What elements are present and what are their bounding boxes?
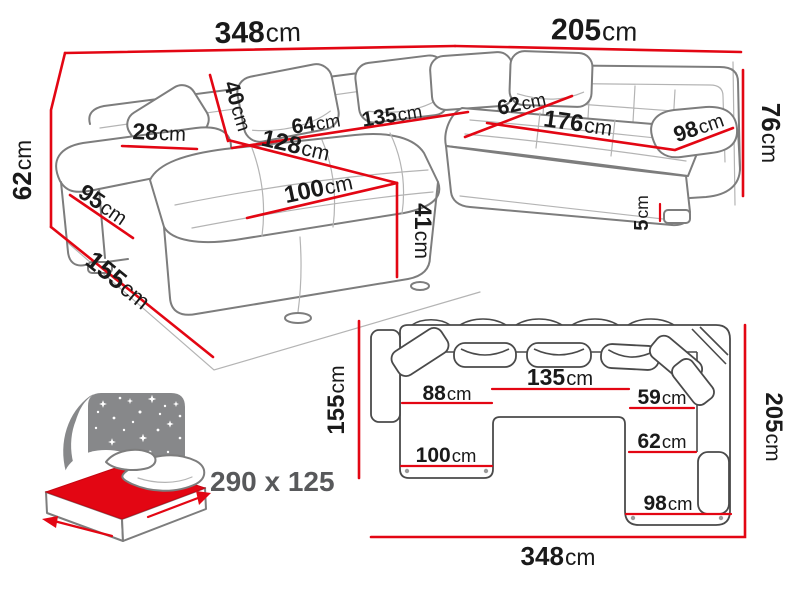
dim-label-armrest-height: 62cm bbox=[7, 140, 37, 200]
dim-label-chaise-total-depth: 155cm bbox=[80, 245, 157, 315]
dim-label-plan-chaise-seat-width: 88cm bbox=[423, 382, 472, 405]
diagram-canvas: 348cm 205cm 76cm 5cm 98cm 176cm 62cm 135… bbox=[0, 0, 800, 600]
dim-label-leg-height: 5cm bbox=[631, 195, 653, 231]
bed-size-label: 290 x 125 bbox=[210, 466, 335, 497]
dim-label-total-width: 348cm bbox=[214, 15, 301, 50]
dim-label-right-side-length: 205cm bbox=[551, 13, 638, 48]
dim-label-plan-right-upper-seat-width: 59cm bbox=[638, 386, 687, 409]
dim-label-plan-right-depth: 205cm bbox=[760, 392, 787, 461]
arrow-head-icon bbox=[42, 516, 58, 528]
sleep-function-icon: 290 x 125 bbox=[42, 393, 335, 541]
plan-left-armrest bbox=[371, 330, 400, 422]
dim-label-plan-left-depth: 155cm bbox=[323, 365, 350, 434]
chaise-foot bbox=[285, 313, 311, 323]
dim-label-plan-middle-seat-width: 135cm bbox=[527, 364, 593, 390]
plan-view: 155cm 205cm 348cm 88cm 135cm 59cm 62cm 1… bbox=[323, 319, 787, 571]
dim-label-seat-height: 41cm bbox=[409, 203, 436, 259]
dim-label-plan-chaise-width: 100cm bbox=[416, 444, 477, 467]
plan-right-armrest bbox=[698, 452, 729, 514]
right-foot bbox=[664, 210, 690, 223]
sofa-dimension-diagram: 348cm 205cm 76cm 5cm 98cm 176cm 62cm 135… bbox=[0, 0, 800, 600]
dim-label-plan-right-end-width: 98cm bbox=[644, 492, 693, 515]
dim-label-plan-right-seat-width: 62cm bbox=[638, 430, 687, 453]
dim-label-backrest-height: 76cm bbox=[756, 103, 786, 163]
chaise-foot bbox=[411, 282, 429, 290]
perspective-view: 348cm 205cm 76cm 5cm 98cm 176cm 62cm 135… bbox=[7, 13, 786, 370]
dim-label-plan-total-width: 348cm bbox=[521, 541, 596, 571]
